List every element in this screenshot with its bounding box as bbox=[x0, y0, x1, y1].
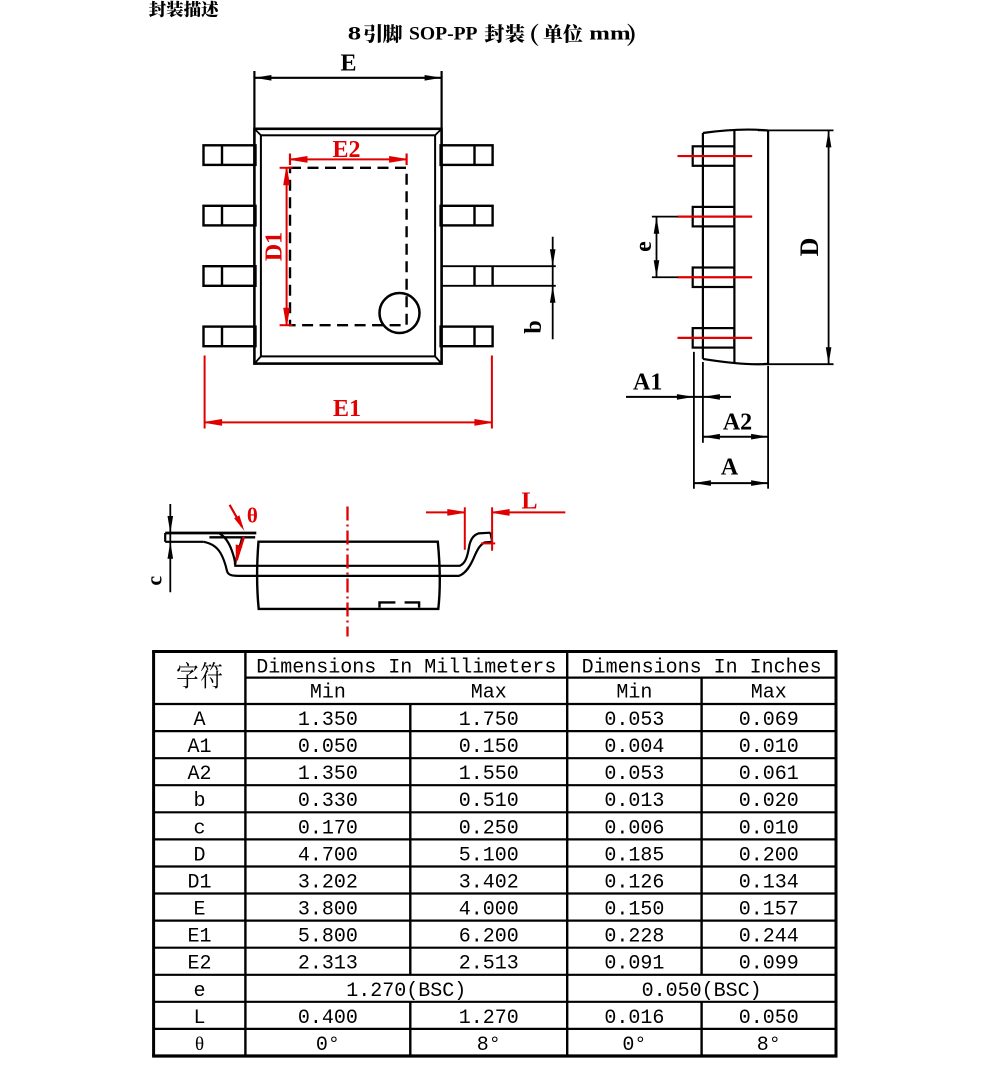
svg-text:0.185: 0.185 bbox=[604, 844, 664, 867]
svg-text:A1: A1 bbox=[187, 736, 211, 759]
svg-text:c: c bbox=[193, 817, 205, 840]
svg-text:0.244: 0.244 bbox=[739, 926, 799, 949]
svg-text:5.800: 5.800 bbox=[298, 926, 358, 949]
svg-text:8: 8 bbox=[348, 24, 361, 45]
svg-text:D1: D1 bbox=[262, 232, 288, 261]
svg-text:E1: E1 bbox=[187, 926, 211, 949]
svg-text:mm: mm bbox=[589, 24, 631, 45]
svg-text:L: L bbox=[193, 1007, 205, 1030]
svg-text:0.050(BSC): 0.050(BSC) bbox=[642, 980, 762, 1003]
svg-text:0.010: 0.010 bbox=[739, 817, 799, 840]
svg-text:0.150: 0.150 bbox=[604, 899, 664, 922]
svg-text:4.700: 4.700 bbox=[298, 844, 358, 867]
svg-text:D1: D1 bbox=[187, 872, 211, 895]
svg-text:θ: θ bbox=[247, 504, 258, 528]
svg-text:SOP-PP: SOP-PP bbox=[409, 24, 478, 45]
svg-text:c: c bbox=[142, 576, 167, 586]
svg-text:1.550: 1.550 bbox=[459, 763, 519, 786]
svg-text:0.170: 0.170 bbox=[298, 817, 358, 840]
svg-text:E: E bbox=[340, 51, 356, 77]
svg-text:0.004: 0.004 bbox=[604, 736, 664, 759]
svg-text:0°: 0° bbox=[316, 1034, 340, 1057]
svg-text:Max: Max bbox=[751, 682, 787, 705]
svg-text:0.099: 0.099 bbox=[739, 953, 799, 976]
svg-text:0.126: 0.126 bbox=[604, 872, 664, 895]
svg-text:6.200: 6.200 bbox=[459, 926, 519, 949]
svg-text:A1: A1 bbox=[633, 370, 662, 396]
svg-text:D: D bbox=[193, 844, 205, 867]
svg-text:Dimensions In Millimeters: Dimensions In Millimeters bbox=[256, 657, 556, 680]
svg-text:0.157: 0.157 bbox=[739, 899, 799, 922]
svg-text:A: A bbox=[721, 455, 739, 481]
svg-text:E: E bbox=[193, 899, 205, 922]
svg-text:3.800: 3.800 bbox=[298, 899, 358, 922]
svg-text:4.000: 4.000 bbox=[459, 899, 519, 922]
svg-text:5.100: 5.100 bbox=[459, 844, 519, 867]
svg-text:1.350: 1.350 bbox=[298, 763, 358, 786]
svg-text:θ: θ bbox=[195, 1034, 204, 1055]
svg-text:0.150: 0.150 bbox=[459, 736, 519, 759]
svg-text:L: L bbox=[521, 489, 537, 515]
svg-text:0.200: 0.200 bbox=[739, 844, 799, 867]
svg-text:0.006: 0.006 bbox=[604, 817, 664, 840]
svg-text:A: A bbox=[193, 709, 205, 732]
svg-text:0.091: 0.091 bbox=[604, 953, 664, 976]
svg-text:3.202: 3.202 bbox=[298, 872, 358, 895]
svg-text:Dimensions In Inches: Dimensions In Inches bbox=[582, 657, 822, 680]
svg-text:2.313: 2.313 bbox=[298, 953, 358, 976]
svg-text:0.510: 0.510 bbox=[459, 790, 519, 813]
svg-text:0.050: 0.050 bbox=[298, 736, 358, 759]
svg-text:3.402: 3.402 bbox=[459, 872, 519, 895]
svg-text:0.016: 0.016 bbox=[604, 1007, 664, 1030]
svg-text:1.350: 1.350 bbox=[298, 709, 358, 732]
svg-text:1.750: 1.750 bbox=[459, 709, 519, 732]
svg-text:0.053: 0.053 bbox=[604, 709, 664, 732]
svg-text:D: D bbox=[795, 238, 824, 257]
svg-text:A2: A2 bbox=[723, 410, 752, 436]
svg-text:8°: 8° bbox=[757, 1034, 781, 1057]
svg-text:0.013: 0.013 bbox=[604, 790, 664, 813]
svg-text:0.330: 0.330 bbox=[298, 790, 358, 813]
svg-text:0.061: 0.061 bbox=[739, 763, 799, 786]
svg-text:b: b bbox=[193, 790, 205, 813]
svg-text:0.228: 0.228 bbox=[604, 926, 664, 949]
svg-text:2.513: 2.513 bbox=[459, 953, 519, 976]
svg-text:1.270: 1.270 bbox=[459, 1007, 519, 1030]
svg-text:Min: Min bbox=[310, 682, 346, 705]
svg-text:Min: Min bbox=[616, 682, 652, 705]
svg-text:Max: Max bbox=[471, 682, 507, 705]
svg-text:0.250: 0.250 bbox=[459, 817, 519, 840]
svg-text:0°: 0° bbox=[622, 1034, 646, 1057]
svg-text:0.069: 0.069 bbox=[739, 709, 799, 732]
svg-text:E1: E1 bbox=[333, 396, 361, 422]
svg-text:1.270(BSC): 1.270(BSC) bbox=[346, 980, 466, 1003]
svg-text:0.134: 0.134 bbox=[739, 872, 799, 895]
svg-text:0.053: 0.053 bbox=[604, 763, 664, 786]
svg-text:8°: 8° bbox=[477, 1034, 501, 1057]
svg-text:e: e bbox=[193, 980, 205, 1003]
svg-text:0.400: 0.400 bbox=[298, 1007, 358, 1030]
svg-text:E2: E2 bbox=[332, 137, 360, 163]
svg-text:e: e bbox=[631, 241, 657, 252]
svg-text:0.020: 0.020 bbox=[739, 790, 799, 813]
svg-text:b: b bbox=[521, 320, 547, 333]
svg-text:0.010: 0.010 bbox=[739, 736, 799, 759]
svg-text:A2: A2 bbox=[187, 763, 211, 786]
svg-text:E2: E2 bbox=[187, 953, 211, 976]
svg-text:0.050: 0.050 bbox=[739, 1007, 799, 1030]
